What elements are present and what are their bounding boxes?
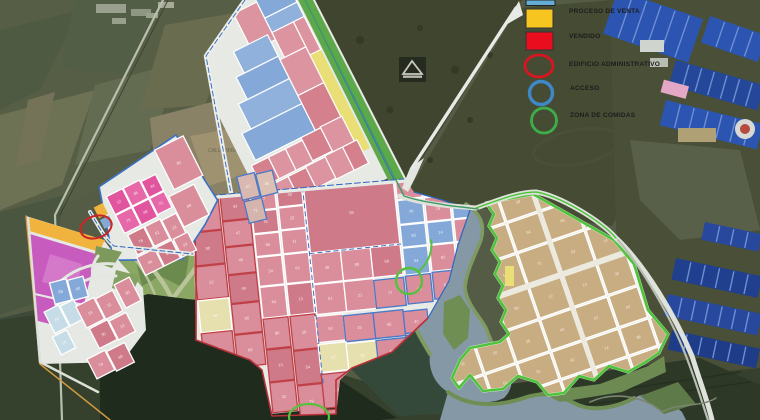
svg-text:VENDIDO: VENDIDO (569, 33, 600, 40)
svg-text:EDIFICIO ADMINISTRATIVO: EDIFICIO ADMINISTRATIVO (569, 61, 660, 68)
svg-text:PROCESO DE VENTA: PROCESO DE VENTA (569, 8, 640, 15)
svg-text:ACCESO: ACCESO (570, 85, 599, 92)
svg-text:ZONA DE COMIDAS: ZONA DE COMIDAS (570, 112, 636, 119)
